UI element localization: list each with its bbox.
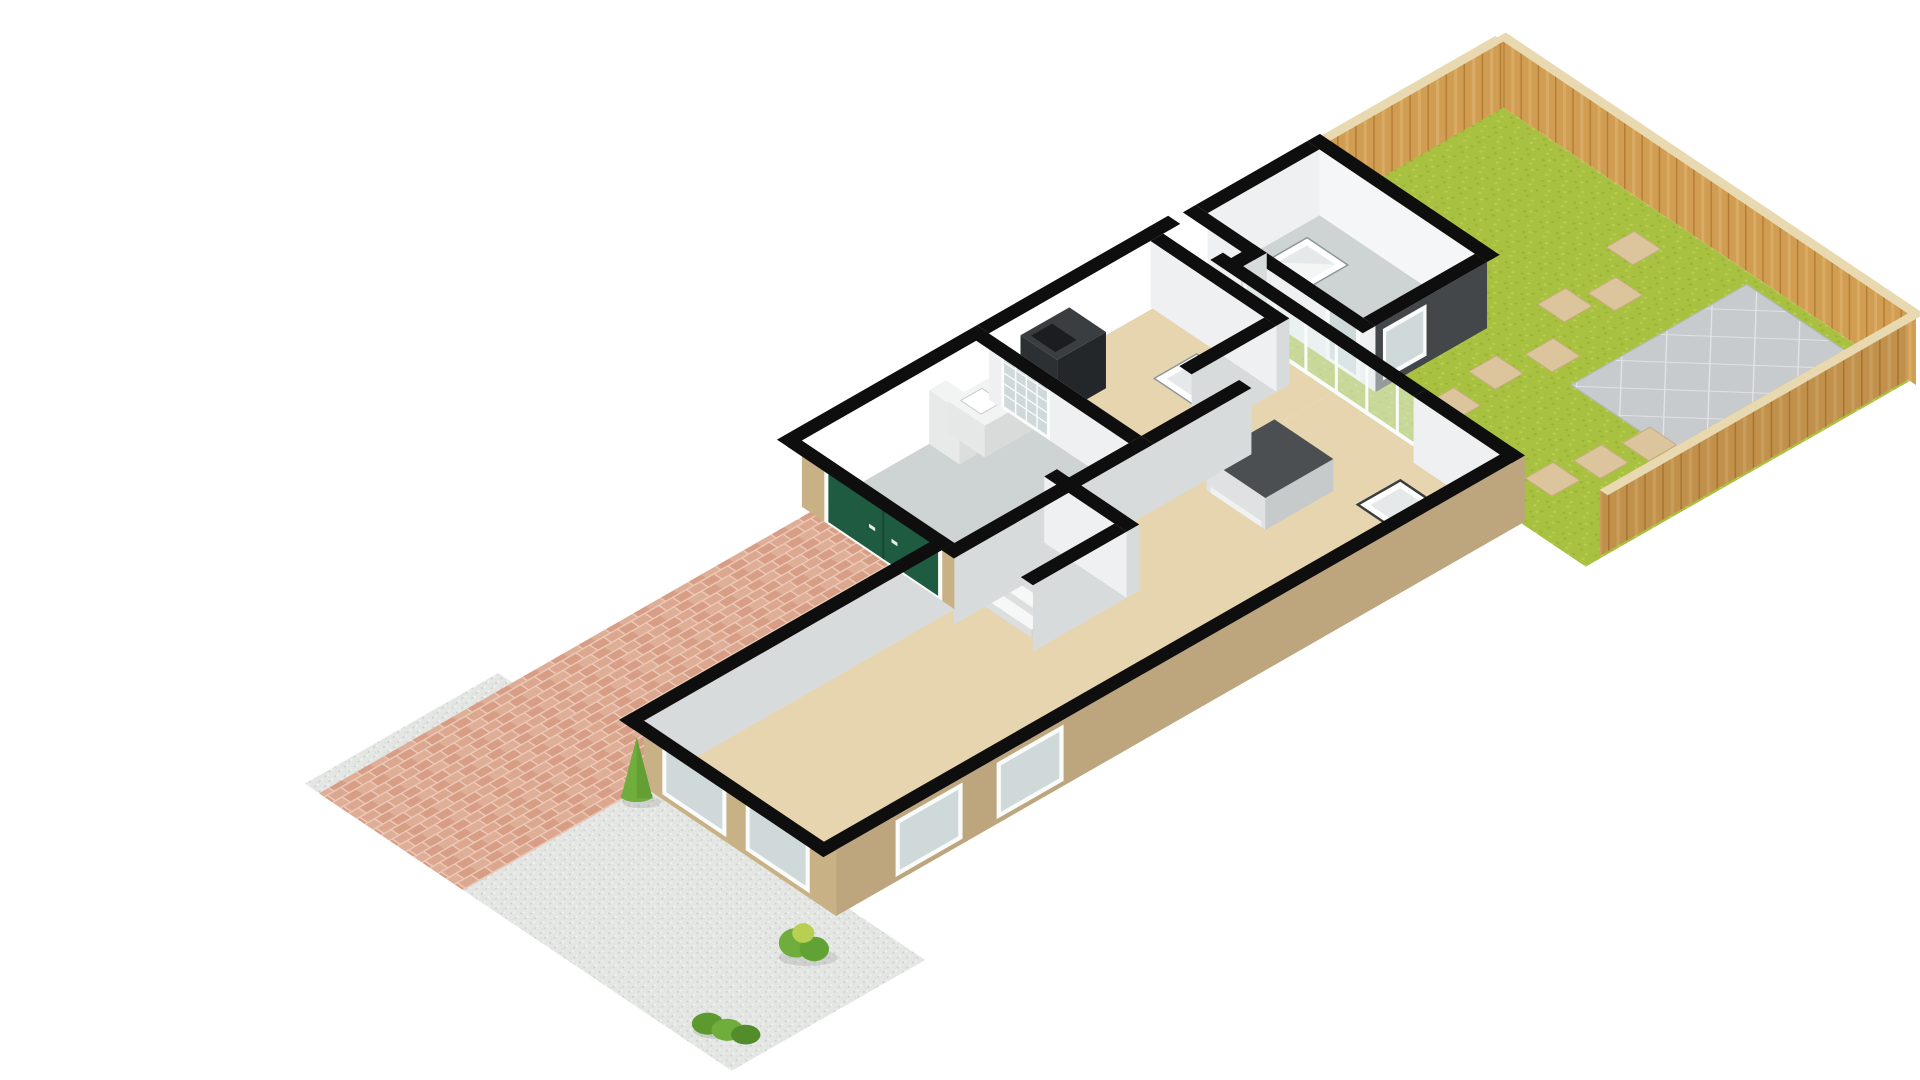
- floorplan-3d-scene: [0, 0, 1920, 1080]
- hedge-3: [731, 1025, 760, 1045]
- garage-door-split: [882, 503, 884, 559]
- bush-round-3: [792, 923, 814, 943]
- glazed-door-mullion-3: [1036, 374, 1037, 429]
- floorplan-stage: 3D ground floor plan with garden, garage…: [0, 0, 1920, 1080]
- glazed-door-mullion-2: [1026, 367, 1027, 422]
